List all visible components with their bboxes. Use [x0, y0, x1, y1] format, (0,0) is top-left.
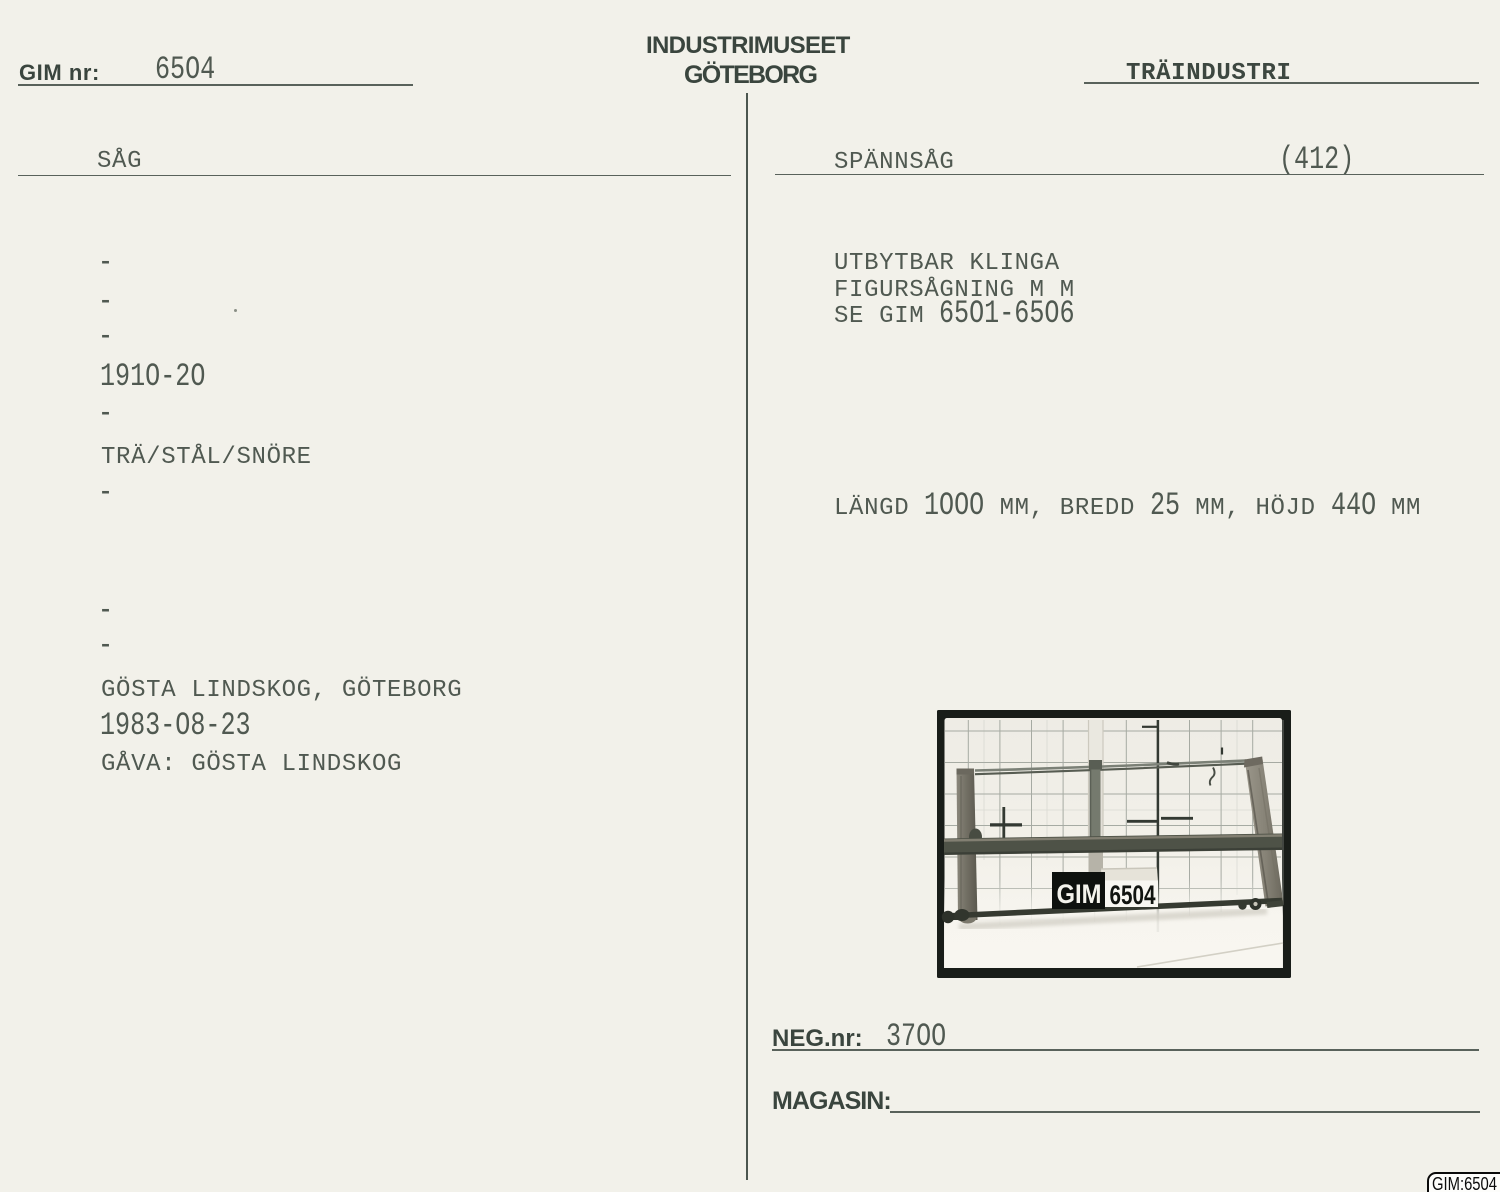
svg-text:6504: 6504 [1110, 880, 1156, 910]
svg-text:GIM: GIM [1057, 879, 1102, 909]
